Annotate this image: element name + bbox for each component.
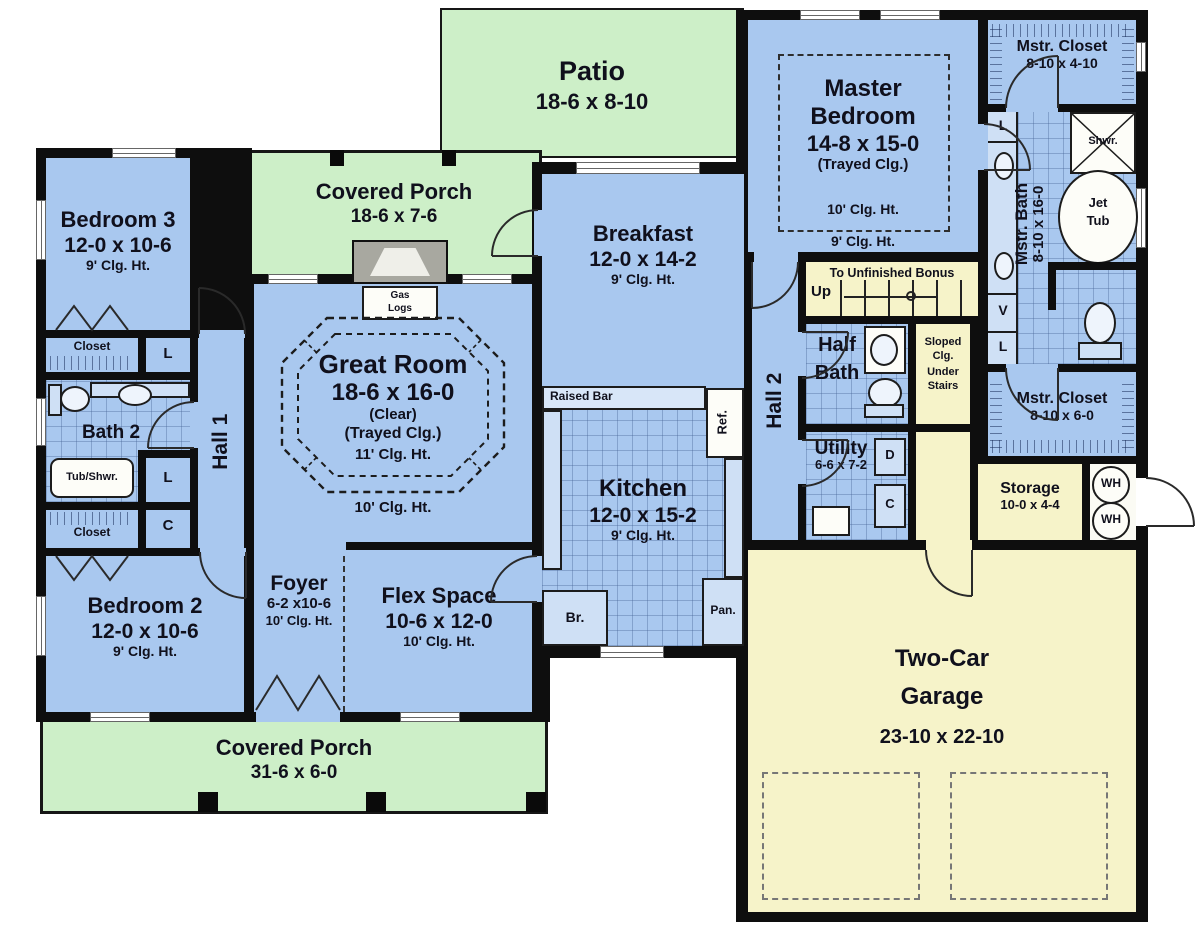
porch-column-bottom-2 [366,792,386,812]
porch-column-bottom-1 [198,792,218,812]
floor-plan: Gas Logs To Unfinished Bonus Up Tub/Shwr… [0,0,1200,928]
bedroom2-clg: 9' Clg. Ht. [46,644,244,660]
porch-column-top-1 [330,150,344,166]
window-greatroom-right-of-fireplace [462,274,512,284]
bedroom2-name: Bedroom 2 [46,594,244,619]
garage-dims: 23-10 x 22-10 [832,726,1052,748]
bedroom3-dims: 12-0 x 10-6 [46,234,190,258]
hall1-name: Hall 1 [209,342,233,542]
mstr-closet-top-hatch-top [992,24,1132,37]
bath2-linen-wall-v [138,458,146,502]
kitchen-name: Kitchen [552,476,734,503]
kitchen-clg: 9' Clg. Ht. [552,528,734,544]
mstr-closet-bottom-dims: 8-10 x 6-0 [988,408,1136,424]
closet-top-hatch [50,356,134,370]
mstr-bath-sink-2 [994,252,1014,280]
breakfast-clg: 9' Clg. Ht. [542,272,744,288]
utility-dims: 6-6 x 7-2 [806,458,876,473]
mstr-shower-label: Shwr. [1070,135,1136,147]
bath2-sink [118,384,152,406]
coat-closet-label: C [146,518,190,535]
half-bath-toilet-tank [864,404,904,418]
opening-bedroom3 [199,330,245,338]
opening-mstr-closet-bottom [1006,364,1058,372]
opening-flex [532,556,542,602]
great-room-clg-inner: 11' Clg. Ht. [254,447,532,464]
master-clg-outer: 9' Clg. Ht. [748,234,978,250]
sloped-line-2: Clg. [916,350,970,362]
jet-tub-label-2: Tub [1058,214,1138,229]
fireplace-label-1: Gas [362,290,438,301]
storage-name: Storage [978,480,1082,498]
patio-dims: 18-6 x 8-10 [440,90,744,115]
stairs-arrow-loop [906,291,916,301]
foyer-name: Foyer [254,572,344,596]
window-greatroom-left-of-fireplace [268,274,318,284]
water-heater-2-label: WH [1092,513,1130,526]
opening-utility [798,440,806,484]
raised-bar-label: Raised Bar [550,390,670,403]
sloped-line-3: Under [916,366,970,378]
great-room-clear: (Clear) [254,407,532,424]
utility-cabinet-label: C [874,497,906,512]
mstr-bath-name: Mstr. Bath [1012,104,1031,344]
water-heater-1-label: WH [1092,477,1130,490]
storage-dims: 10-0 x 4-4 [978,498,1082,513]
stairs-label: To Unfinished Bonus [810,266,974,280]
broom-closet-label: Br. [542,610,608,626]
mstr-closet-bottom-name: Mstr. Closet [988,390,1136,408]
mstr-toilet-nook-wall-h [1048,262,1136,270]
mstr-toilet-bowl [1084,302,1116,344]
porch-column-bottom-3 [526,792,546,812]
closet-bottom-label: Closet [46,526,138,539]
closet-top-label: Closet [46,340,138,353]
flex-top-wall [346,542,532,550]
opening-front-door [256,712,340,722]
utility-dryer-label: D [874,448,906,463]
great-room-name: Great Room [254,350,532,379]
window-bedroom3-top [112,148,176,158]
porch-bottom-dims: 31-6 x 6-0 [40,762,548,783]
great-room-dims: 18-6 x 16-0 [254,380,532,407]
refrigerator-label: Ref. [716,387,731,457]
sloped-line-1: Sloped [916,336,970,348]
garage-entry-passage [916,432,970,540]
mstr-toilet-tank [1078,342,1122,360]
pantry-label: Pan. [702,604,744,617]
half-bath-sink [870,334,898,366]
opening-half-bath [798,332,806,376]
garage-name-1: Two-Car [842,646,1042,673]
mstr-closet-top-name: Mstr. Closet [988,38,1136,56]
linen-upper-label: L [146,346,190,363]
opening-bedroom2 [200,548,246,556]
kitchen-dims: 12-0 x 15-2 [552,504,734,528]
master-name-2: Bedroom [748,104,978,131]
opening-bath2 [190,402,198,448]
flex-name: Flex Space [346,584,532,609]
flex-clg: 10' Clg. Ht. [346,634,532,650]
stairs-up-label: Up [806,284,836,301]
fireplace-label-2: Logs [362,303,438,314]
opening-master [754,252,798,262]
patio-name: Patio [440,56,744,86]
mstr-bath-sink-1 [994,152,1014,180]
great-room-tray: (Trayed Clg.) [254,425,532,443]
half-bath-name-1: Half [808,334,866,356]
opening-exterior-wh [1136,478,1148,526]
master-dims: 14-8 x 15-0 [748,132,978,157]
window-kitchen-bottom [600,646,664,658]
garage-name-2: Garage [842,684,1042,711]
window-mstr-closet-right [1136,42,1146,72]
patio-sliding-door [576,162,700,174]
hall2-name: Hall 2 [763,281,787,521]
garage-door-outline-2 [950,772,1108,900]
bedroom3-clg: 9' Clg. Ht. [46,258,190,274]
porch-top-name: Covered Porch [246,180,542,205]
sloped-line-4: Stairs [916,380,970,392]
garage-door-outline-1 [762,772,920,900]
master-name-1: Master [748,76,978,103]
breakfast-name: Breakfast [542,222,744,247]
window-bedroom2-bottom [90,712,150,722]
porch-top-dims: 18-6 x 7-6 [246,206,542,227]
window-bedroom2-left [36,596,46,656]
great-room-clg-outer: 10' Clg. Ht. [254,500,532,517]
bath2-toilet-bowl [60,386,90,412]
mstr-bath-dims: 8-10 x 16-0 [1031,104,1048,344]
foyer-clg: 10' Clg. Ht. [254,614,344,629]
window-flex-bottom [400,712,460,722]
porch-bottom-name: Covered Porch [40,736,548,761]
breakfast-dims: 12-0 x 14-2 [542,248,744,272]
master-clg-inner: 10' Clg. Ht. [748,202,978,218]
bedroom2-dims: 12-0 x 10-6 [46,620,244,644]
mstr-closet-top-dims: 8-10 x 4-10 [988,56,1136,72]
jet-tub-label-1: Jet [1058,196,1138,211]
window-master-top-1 [800,10,860,20]
flex-dims: 10-6 x 12-0 [346,610,532,634]
opening-mstr-bath [978,124,988,170]
window-master-top-2 [880,10,940,20]
half-bath-name-2: Bath [808,362,866,384]
opening-garage-passage [926,540,972,550]
window-bath2-left [36,398,46,446]
closet-bottom-hatch [50,512,134,525]
master-tray-label: (Trayed Clg.) [748,157,978,174]
porch-column-top-2 [442,150,456,166]
linen-lower-label: L [146,470,190,487]
window-bedroom3-left [36,200,46,260]
bath2-linen-wall-h [138,450,190,458]
utility-washer [812,506,850,536]
foyer-dims: 6-2 x10-6 [254,596,344,613]
stairs-arrow-line [844,296,936,298]
bath2-tub-label: Tub/Shwr. [50,471,134,483]
bath2-name: Bath 2 [46,422,176,443]
mstr-closet-bottom-hatch-bottom [992,440,1132,453]
bedroom3-name: Bedroom 3 [46,208,190,233]
mstr-bath-label-group: Mstr. Bath 8-10 x 16-0 [1012,104,1052,344]
